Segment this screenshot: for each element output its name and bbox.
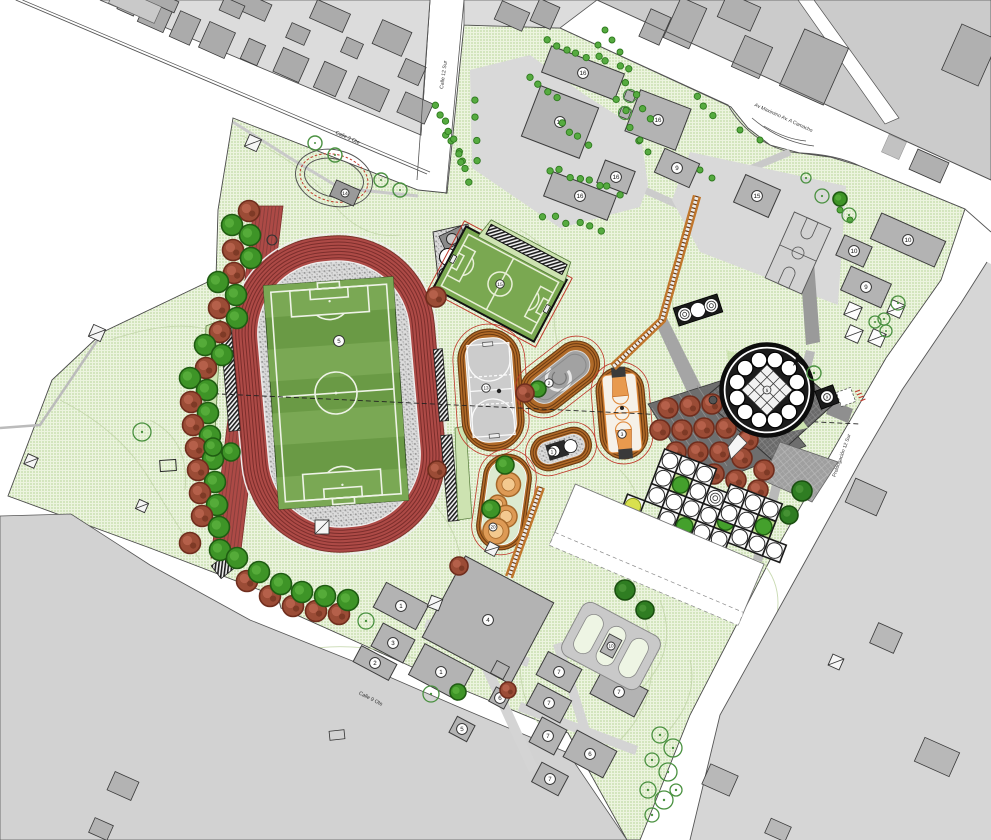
svg-text:15: 15 xyxy=(497,282,503,288)
svg-text:7: 7 xyxy=(548,776,552,783)
svg-text:5: 5 xyxy=(337,338,341,345)
svg-text:9: 9 xyxy=(864,284,868,291)
svg-text:9: 9 xyxy=(675,165,679,172)
svg-text:6: 6 xyxy=(588,751,592,758)
svg-text:7: 7 xyxy=(547,700,551,707)
svg-text:10: 10 xyxy=(905,237,912,244)
svg-text:20: 20 xyxy=(490,525,496,530)
svg-text:15: 15 xyxy=(754,193,761,200)
svg-text:7: 7 xyxy=(557,669,561,676)
svg-text:1: 1 xyxy=(551,450,554,456)
svg-text:5: 5 xyxy=(460,726,464,733)
svg-text:3: 3 xyxy=(391,640,395,647)
svg-text:1: 1 xyxy=(439,669,443,676)
svg-text:10: 10 xyxy=(851,248,858,255)
svg-text:7: 7 xyxy=(617,689,621,696)
svg-text:4: 4 xyxy=(486,617,490,624)
svg-text:16: 16 xyxy=(613,174,620,181)
svg-text:2: 2 xyxy=(373,660,377,667)
svg-text:16: 16 xyxy=(580,70,587,77)
svg-text:2: 2 xyxy=(548,381,551,387)
svg-text:3: 3 xyxy=(621,432,624,438)
svg-text:7: 7 xyxy=(546,733,550,740)
svg-text:14: 14 xyxy=(342,191,348,197)
svg-text:10: 10 xyxy=(608,644,614,649)
svg-text:16: 16 xyxy=(577,193,584,200)
svg-text:6: 6 xyxy=(498,695,502,702)
svg-text:13: 13 xyxy=(483,386,489,391)
svg-text:1: 1 xyxy=(399,603,403,610)
svg-text:16: 16 xyxy=(655,117,662,124)
